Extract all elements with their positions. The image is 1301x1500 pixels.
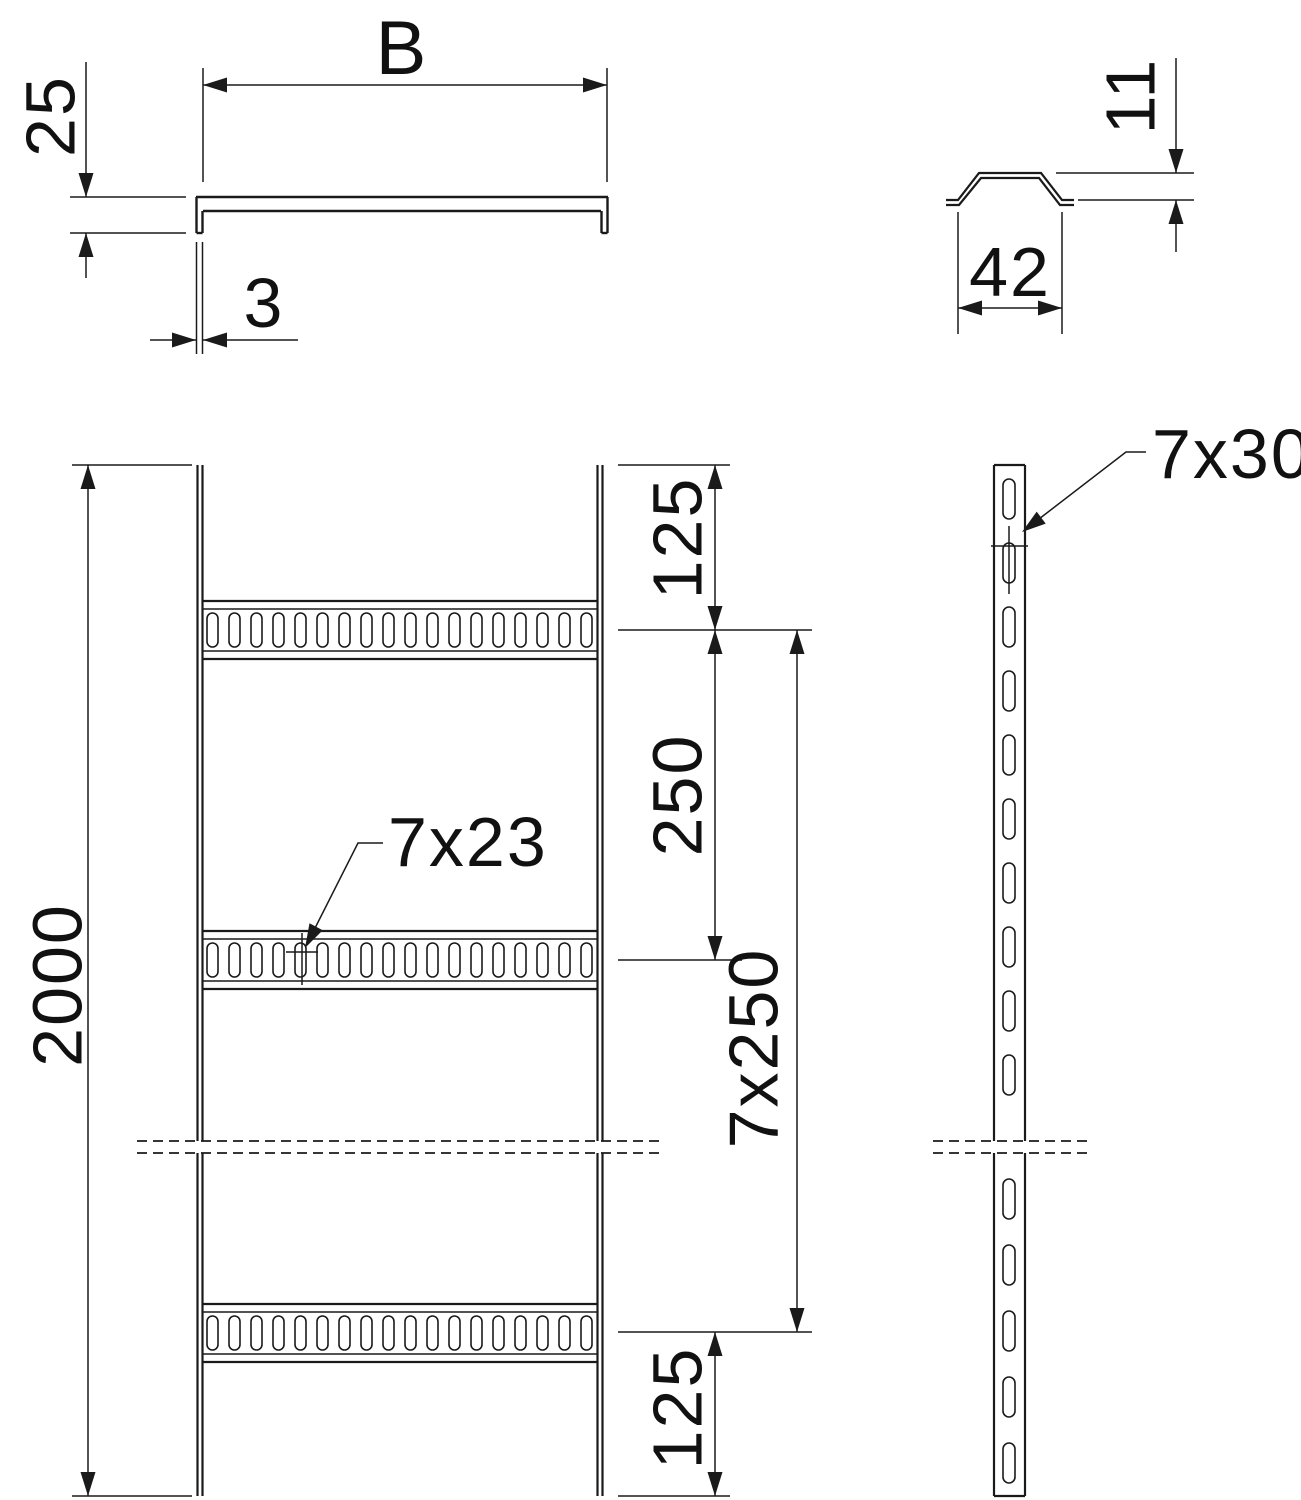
drawing-page: B 25 3 — [0, 0, 1301, 1500]
rung — [203, 1304, 597, 1362]
rung-slot — [207, 613, 218, 647]
rung-slot — [449, 613, 460, 647]
rail-slot — [1003, 1443, 1015, 1483]
rung-slot — [383, 613, 394, 647]
rung-slot — [405, 1316, 416, 1350]
rung-slot — [273, 613, 284, 647]
thickness-3-dimension: 3 — [150, 242, 298, 354]
rung-slot — [229, 1316, 240, 1350]
arrowhead — [790, 630, 805, 654]
rung-slot — [515, 613, 526, 647]
rail-slot — [1003, 927, 1015, 967]
arrowhead — [172, 333, 196, 348]
rung-slot — [317, 613, 328, 647]
rung-slot — [229, 613, 240, 647]
rung-slot — [537, 943, 548, 977]
arrowhead — [81, 465, 96, 489]
rung-slot — [361, 943, 372, 977]
height-25-dimension: 25 — [12, 62, 187, 278]
rung-profile-view: 11 42 — [946, 58, 1194, 334]
rail-slot — [1003, 1311, 1015, 1351]
rung-slot — [581, 613, 592, 647]
rung-slot — [581, 1316, 592, 1350]
rail-slot — [1003, 1179, 1015, 1219]
arrowhead — [81, 1472, 96, 1496]
rung-slot — [317, 1316, 328, 1350]
rail-slot — [1003, 671, 1015, 711]
rung-slot — [295, 1316, 306, 1350]
rail-slot — [1003, 1055, 1015, 1095]
rung-slot — [515, 1316, 526, 1350]
rail-slot — [1003, 1245, 1015, 1285]
rung-slot — [339, 1316, 350, 1350]
rail-slot — [1003, 479, 1015, 519]
side-rail-slots — [1003, 479, 1015, 1483]
label-rung-pitch: 250 — [639, 734, 717, 857]
rung-slot — [471, 613, 482, 647]
leader-line — [1026, 452, 1146, 529]
rung-slot — [493, 613, 504, 647]
break-lines-side — [933, 1141, 1087, 1153]
rung-slot — [559, 613, 570, 647]
rung-slot — [405, 943, 416, 977]
rung-slot — [427, 613, 438, 647]
rung-slot — [273, 943, 284, 977]
rung-slot — [317, 943, 328, 977]
arrowhead — [708, 630, 723, 654]
rung-slot — [229, 943, 240, 977]
rung-slot — [537, 1316, 548, 1350]
label-profile-width: 42 — [969, 233, 1051, 311]
rail-slot — [1003, 607, 1015, 647]
rung-slot — [449, 1316, 460, 1350]
rung-slot — [471, 1316, 482, 1350]
rail-slot — [1003, 863, 1015, 903]
label-profile-height: 11 — [1092, 58, 1170, 135]
rung-slot — [251, 943, 262, 977]
rung-slot — [361, 613, 372, 647]
rung-slot — [339, 613, 350, 647]
rung-slot — [273, 1316, 284, 1350]
arrowhead — [790, 1308, 805, 1332]
rung-slot — [493, 943, 504, 977]
front-view: 7x23 2000 125 250 — [19, 465, 813, 1496]
rung-slot — [449, 943, 460, 977]
height-11-dimension: 11 — [1056, 58, 1194, 252]
rung-slot — [581, 943, 592, 977]
rung-slot — [559, 1316, 570, 1350]
label-end-spacing-top: 125 — [639, 477, 717, 600]
rung — [203, 931, 597, 989]
callout-7x30: 7x30 — [991, 415, 1301, 594]
rung-slot — [295, 943, 306, 977]
rung-slot — [251, 613, 262, 647]
rail-slot — [1003, 1377, 1015, 1417]
rung-slot — [471, 943, 482, 977]
arrowhead — [708, 1472, 723, 1496]
arrowhead — [203, 78, 227, 93]
rung — [203, 601, 597, 659]
rung-slot — [537, 613, 548, 647]
label-rail-slot: 7x30 — [1152, 415, 1301, 493]
rung-slot — [339, 943, 350, 977]
arrowhead — [79, 233, 94, 257]
rung-slot — [405, 613, 416, 647]
break-lines-front — [137, 1141, 663, 1153]
rung-slot — [207, 943, 218, 977]
rung-slot — [295, 613, 306, 647]
section-view: B 25 3 — [12, 6, 609, 354]
rung-slot — [383, 943, 394, 977]
arrowhead — [203, 333, 227, 348]
label-section-height: 25 — [12, 75, 90, 157]
rail-slot — [1003, 735, 1015, 775]
label-end-spacing-bottom: 125 — [639, 1347, 717, 1470]
label-rung-slot: 7x23 — [388, 803, 548, 881]
rung-slot — [559, 943, 570, 977]
side-view: 7x30 — [933, 415, 1301, 1496]
rung-slot — [207, 1316, 218, 1350]
label-section-thickness: 3 — [244, 264, 285, 342]
rail-slot — [1003, 991, 1015, 1031]
right-dimension-chain: 125 250 7x250 125 — [618, 465, 812, 1496]
arrowhead — [708, 606, 723, 630]
width-42-dimension: 42 — [958, 212, 1062, 334]
rung-slot — [493, 1316, 504, 1350]
rung-slot — [251, 1316, 262, 1350]
rung-slot — [427, 1316, 438, 1350]
arrowhead — [1169, 149, 1184, 173]
length-2000-dimension: 2000 — [19, 465, 193, 1496]
b-dimension: B — [203, 6, 607, 182]
arrowhead — [583, 78, 607, 93]
arrowhead — [1169, 200, 1184, 224]
technical-drawing: B 25 3 — [0, 0, 1301, 1500]
rung-slot — [383, 1316, 394, 1350]
label-overall-length: 2000 — [19, 903, 97, 1067]
arrowhead — [79, 173, 94, 197]
label-rung-pitch-total: 7x250 — [715, 948, 793, 1149]
rung-slot — [427, 943, 438, 977]
front-rungs — [203, 601, 597, 1362]
rung-slot — [361, 1316, 372, 1350]
label-section-width: B — [376, 6, 429, 91]
rung-slot — [515, 943, 526, 977]
rail-slot — [1003, 799, 1015, 839]
